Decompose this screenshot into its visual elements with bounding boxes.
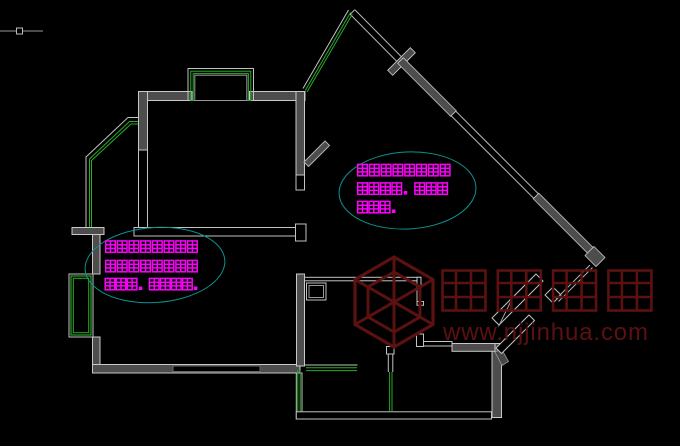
svg-text:www.njjinhua.com: www.njjinhua.com bbox=[442, 319, 648, 346]
